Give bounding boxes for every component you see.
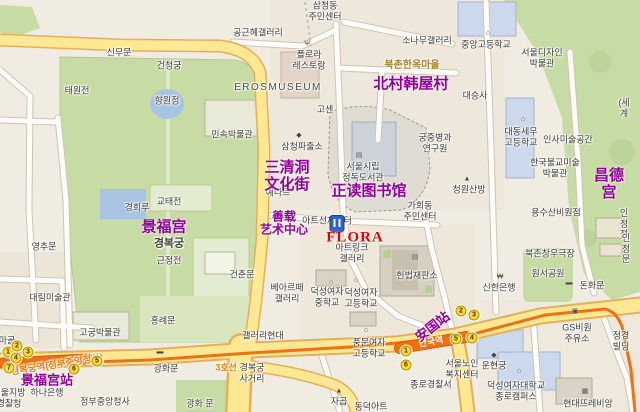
map-base-layer — [0, 0, 640, 412]
map-canvas[interactable]: Ψ◆▤⌂⌂⌂⌂⌂⌂◆₩▣▤▦▲▬▲▬ 삼청동 주민센터공근혜갤러리플로라 레스토… — [0, 0, 640, 412]
